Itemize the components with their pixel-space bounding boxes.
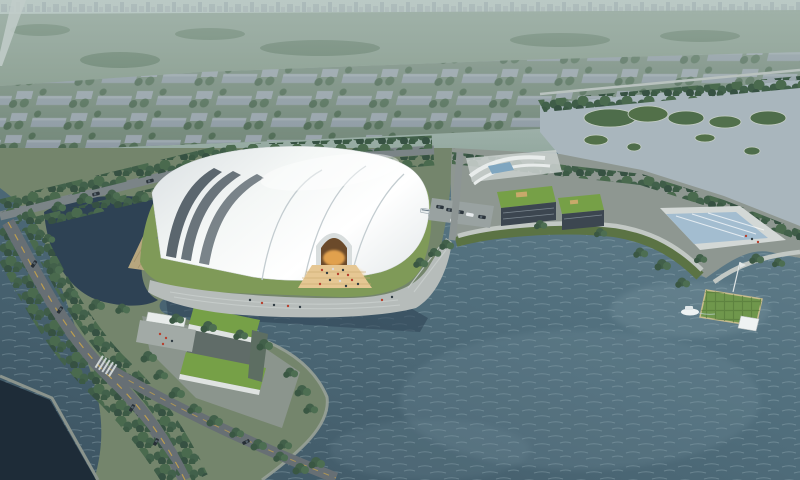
rendering-canvas [0, 0, 800, 480]
aerial-rendering [0, 0, 800, 480]
pier-pavilion [738, 316, 759, 331]
main-hall [140, 146, 452, 317]
entrance-glow [323, 250, 345, 266]
